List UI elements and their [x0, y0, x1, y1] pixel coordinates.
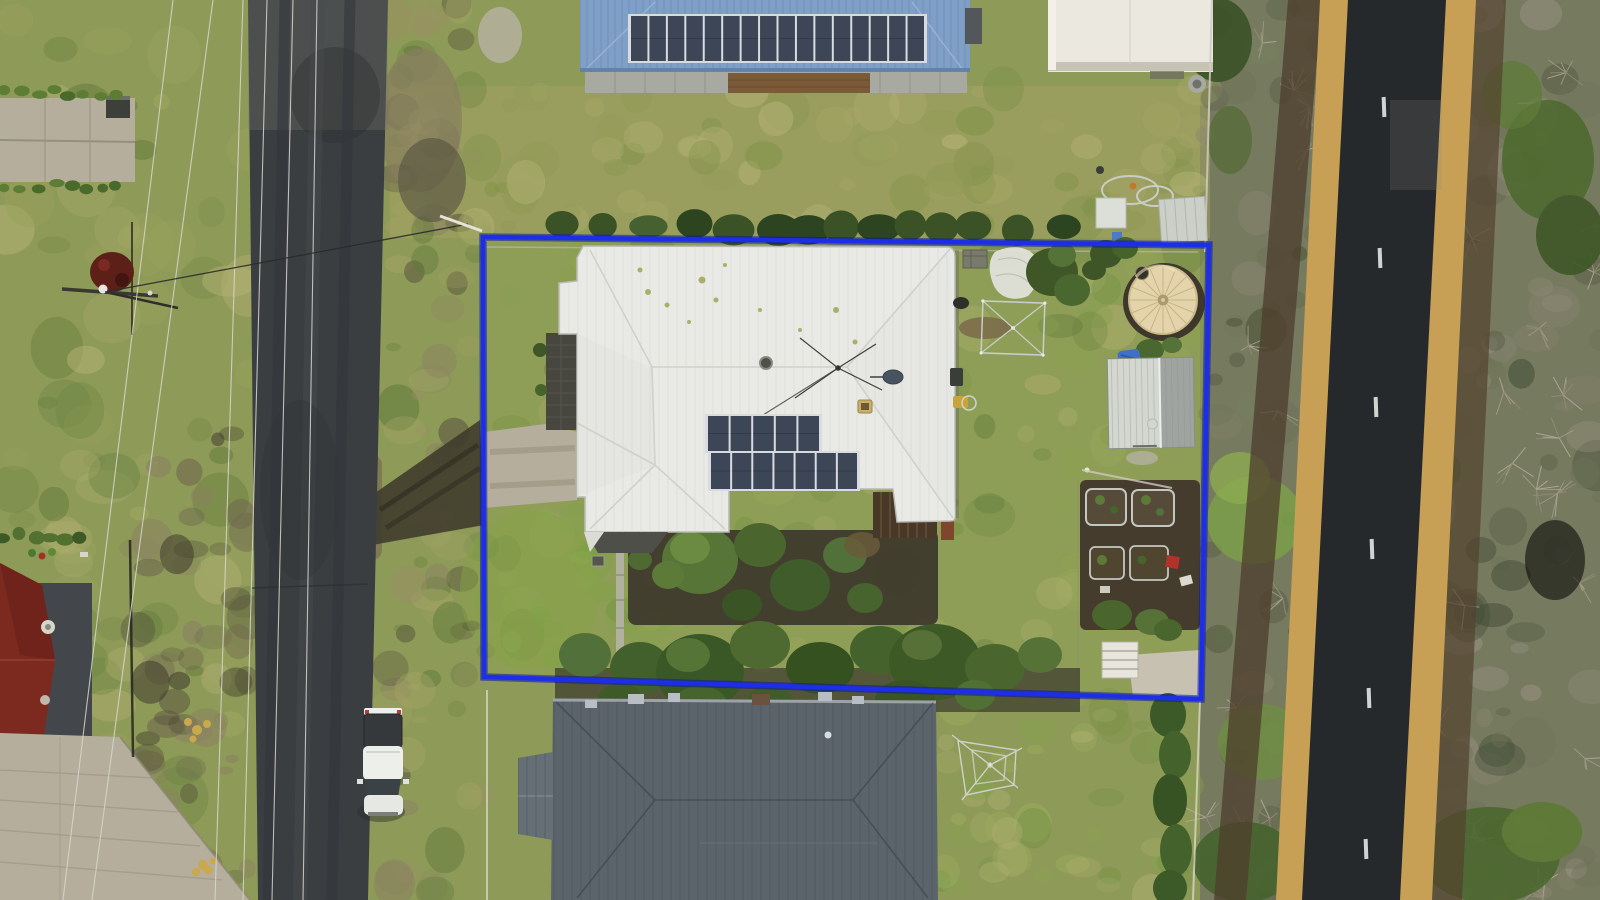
- timber-wall-section: [728, 73, 870, 93]
- neighbour-solar-strip: [628, 14, 927, 63]
- top-left-driveway: [0, 96, 135, 182]
- concrete-driveway: [484, 424, 577, 508]
- white-step-unit: [1102, 642, 1138, 678]
- ute-tray-canopy: [364, 714, 402, 748]
- paver-square: [592, 556, 604, 566]
- neighbour-house-blue-roof: [580, 0, 982, 93]
- garden-shed: [1107, 357, 1195, 448]
- aerial-photo-canvas: [0, 0, 1600, 900]
- roof-attachment: [965, 8, 982, 44]
- aerial-photo: [0, 0, 1600, 900]
- rooftop-solar-top-row: [705, 414, 822, 453]
- rainwater-tank: [1123, 263, 1205, 341]
- courtyard-garden: [628, 523, 938, 625]
- neighbour-garage: [1048, 0, 1213, 79]
- dark-bin: [950, 368, 963, 386]
- red-bush: [90, 252, 134, 292]
- ute-cab: [363, 746, 403, 780]
- rooftop-solar-bottom-row: [708, 451, 860, 491]
- red-wheelbarrow: [1165, 555, 1180, 569]
- grill: [953, 297, 969, 309]
- ute-windshield: [365, 779, 401, 797]
- main-house-white-roof: [559, 246, 959, 533]
- garden-crate: [963, 250, 987, 268]
- heater-flue: [858, 400, 872, 413]
- bird-bath: [1188, 75, 1206, 93]
- neighbour-house-grey-roof: [518, 692, 938, 900]
- white-box: [1096, 198, 1126, 228]
- yellow-reel: [953, 396, 968, 408]
- roof-flashing: [553, 700, 936, 702]
- white-ute: [357, 708, 409, 822]
- roof-vent-ring: [760, 357, 772, 369]
